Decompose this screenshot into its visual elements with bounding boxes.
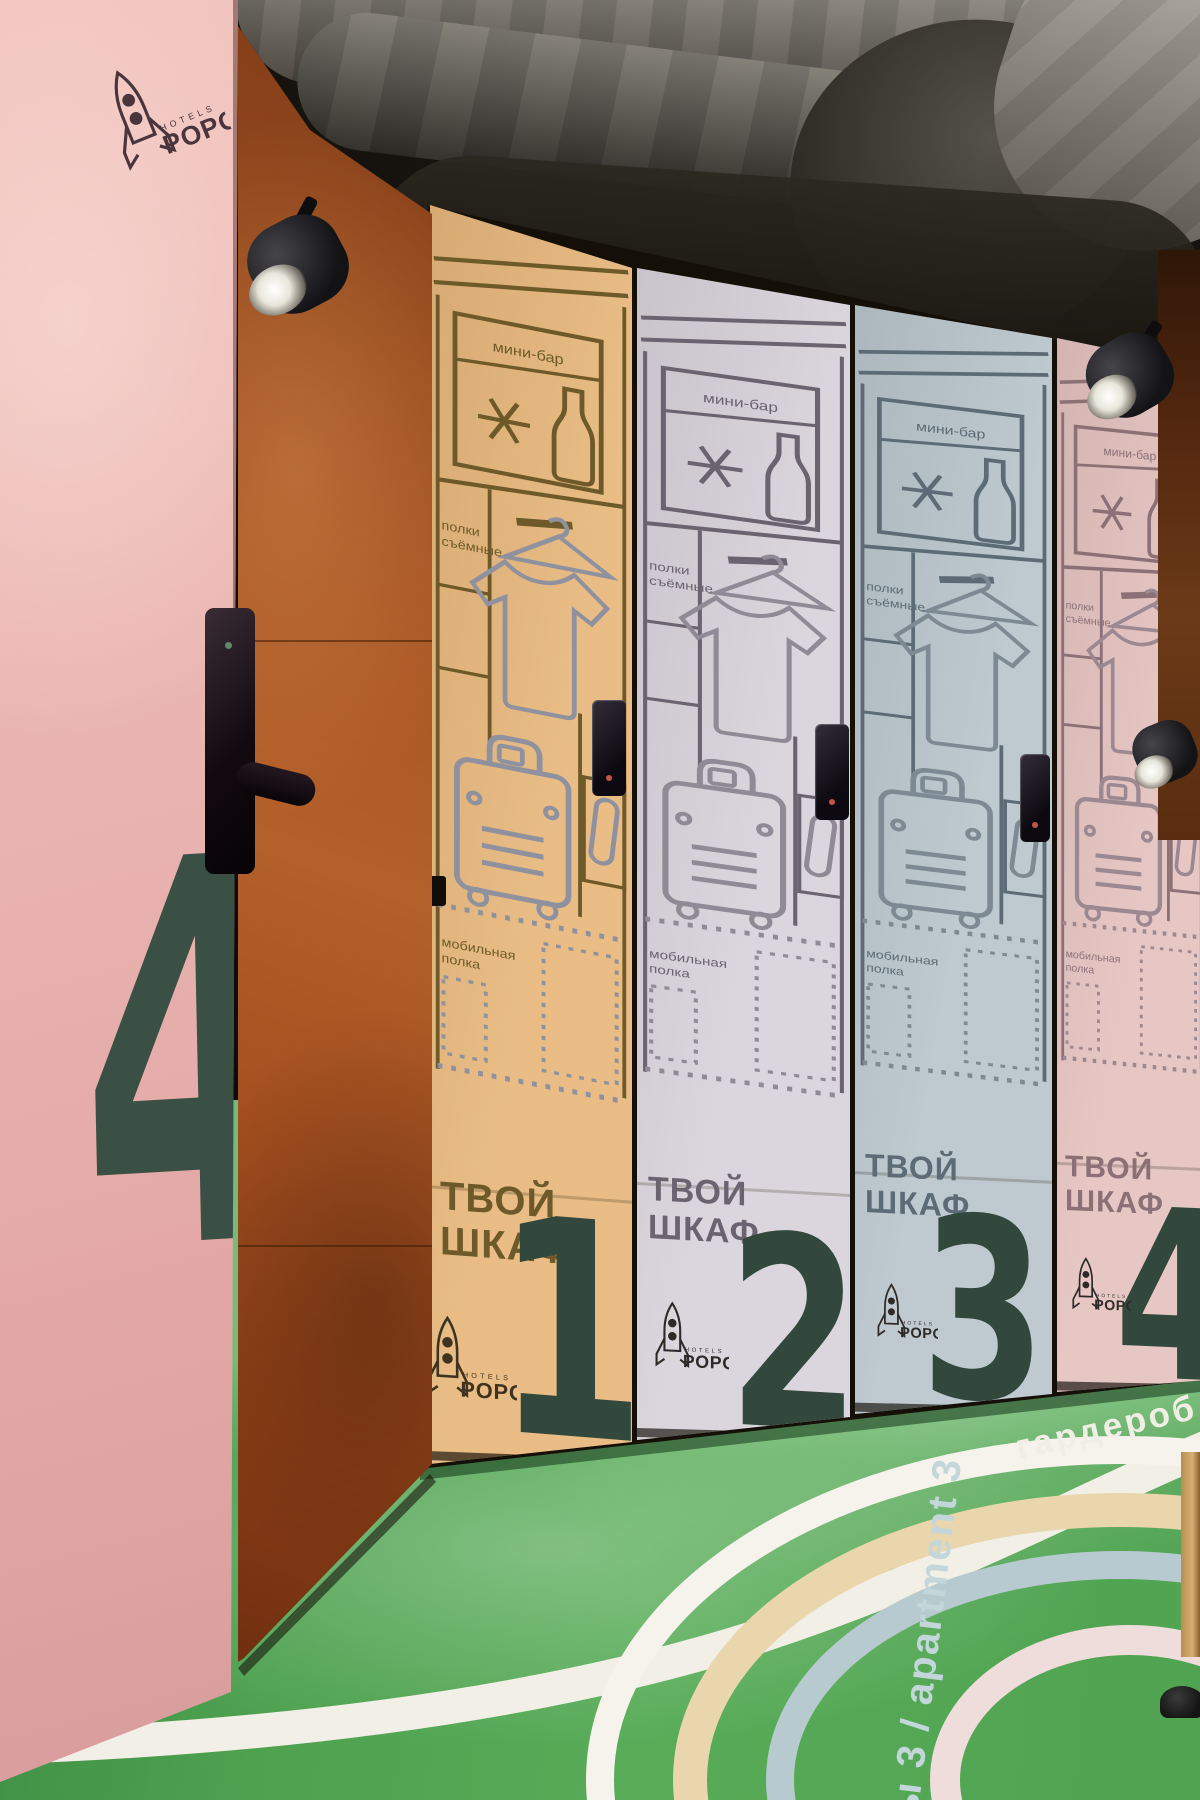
wardrobe-panel-1: ТВОЙ ШКАФ 1 xyxy=(430,205,632,1464)
lock-led xyxy=(225,642,232,649)
door-popov-logo xyxy=(84,34,235,180)
photo-hotel-wardrobe-corridor: мини-бар полкисъёмные мобильнаяполка HOT… xyxy=(0,0,1200,1800)
copper-seam xyxy=(238,640,432,642)
panel-number: 2 xyxy=(727,1230,860,1444)
wood-post xyxy=(1181,1452,1200,1657)
spotlight-icon xyxy=(1132,712,1200,804)
wardrobe-panel-3: ТВОЙ ШКАФ 3 xyxy=(855,305,1052,1414)
copper-seam xyxy=(238,1245,432,1247)
door-lock xyxy=(205,608,255,874)
card-lock xyxy=(592,700,626,796)
card-lock xyxy=(1020,754,1050,842)
floor-lane-pink xyxy=(945,1640,1200,1800)
spotlight-icon xyxy=(1086,318,1176,428)
wardrobe-panel-2: ТВОЙ ШКАФ 2 xyxy=(637,268,850,1440)
panel-number: 3 xyxy=(921,1211,1046,1412)
pink-door: 4 xyxy=(0,0,240,1790)
floor-door-stopper xyxy=(1160,1686,1200,1718)
card-lock xyxy=(815,724,849,820)
panel-number: 1 xyxy=(496,1210,646,1456)
spotlight-icon xyxy=(246,196,356,336)
